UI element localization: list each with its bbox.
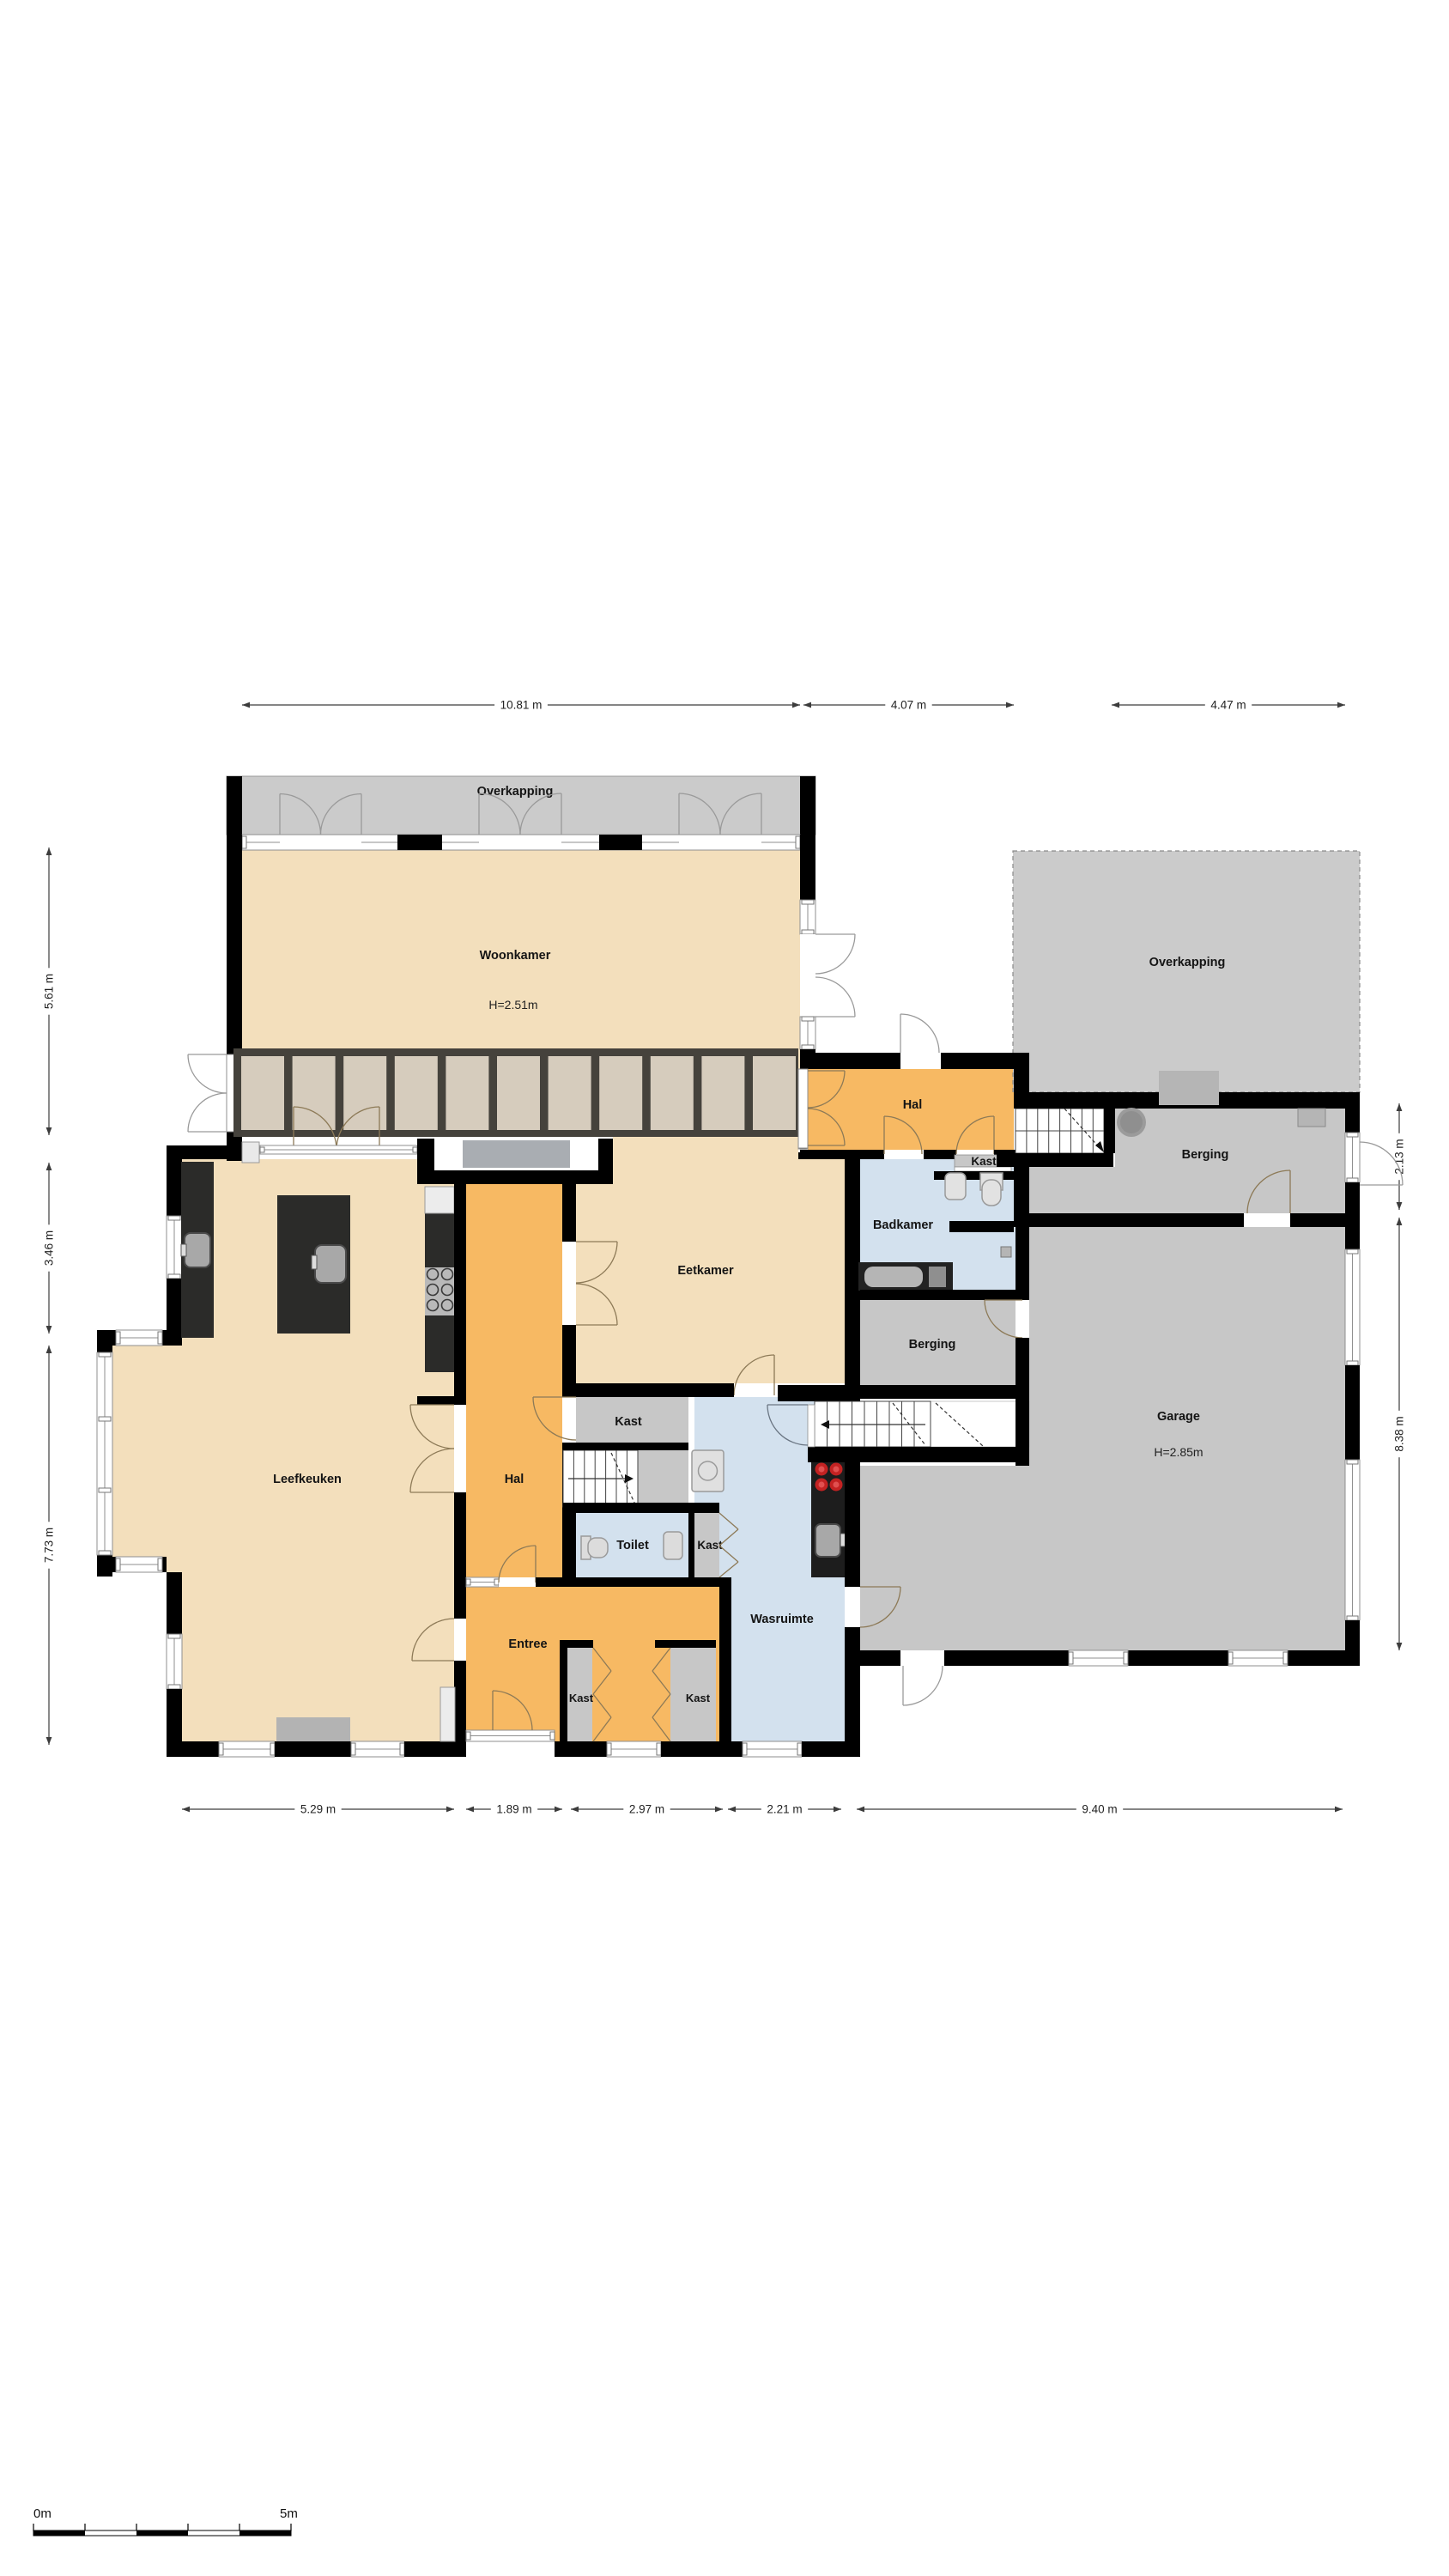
svg-text:Woonkamer: Woonkamer xyxy=(480,949,551,963)
svg-text:Leefkeuken: Leefkeuken xyxy=(273,1473,342,1486)
svg-text:5m: 5m xyxy=(280,2506,298,2521)
svg-text:Overkapping: Overkapping xyxy=(1149,956,1226,969)
svg-text:Kast: Kast xyxy=(971,1155,997,1168)
svg-text:2.97 m: 2.97 m xyxy=(629,1803,664,1816)
svg-text:Berging: Berging xyxy=(1182,1148,1229,1162)
svg-text:5.29 m: 5.29 m xyxy=(300,1803,336,1816)
svg-text:2.21 m: 2.21 m xyxy=(767,1803,802,1816)
svg-text:Kast: Kast xyxy=(686,1692,711,1704)
svg-text:Hal: Hal xyxy=(903,1098,923,1112)
svg-text:Hal: Hal xyxy=(505,1473,524,1486)
svg-text:7.73 m: 7.73 m xyxy=(43,1528,56,1563)
svg-text:Garage: Garage xyxy=(1157,1410,1200,1424)
svg-text:0m: 0m xyxy=(33,2506,52,2521)
svg-text:H=2.85m: H=2.85m xyxy=(1154,1445,1203,1459)
svg-text:Kast: Kast xyxy=(615,1415,642,1429)
svg-text:9.40 m: 9.40 m xyxy=(1082,1803,1117,1816)
svg-text:10.81 m: 10.81 m xyxy=(500,699,543,712)
svg-text:Eetkamer: Eetkamer xyxy=(677,1264,734,1278)
svg-text:5.61 m: 5.61 m xyxy=(43,974,56,1009)
svg-text:Badkamer: Badkamer xyxy=(873,1218,933,1232)
svg-text:Overkapping: Overkapping xyxy=(477,785,554,799)
svg-text:Toilet: Toilet xyxy=(616,1539,649,1552)
svg-text:8.38 m: 8.38 m xyxy=(1393,1416,1406,1451)
svg-text:Wasruimte: Wasruimte xyxy=(750,1613,814,1626)
svg-text:Entree: Entree xyxy=(508,1637,547,1651)
svg-text:4.47 m: 4.47 m xyxy=(1210,699,1246,712)
svg-text:Berging: Berging xyxy=(909,1338,956,1352)
svg-text:4.07 m: 4.07 m xyxy=(891,699,926,712)
svg-text:Kast: Kast xyxy=(569,1692,594,1704)
svg-text:1.89 m: 1.89 m xyxy=(496,1803,531,1816)
svg-text:3.46 m: 3.46 m xyxy=(43,1230,56,1266)
svg-text:H=2.51m: H=2.51m xyxy=(488,998,537,1012)
